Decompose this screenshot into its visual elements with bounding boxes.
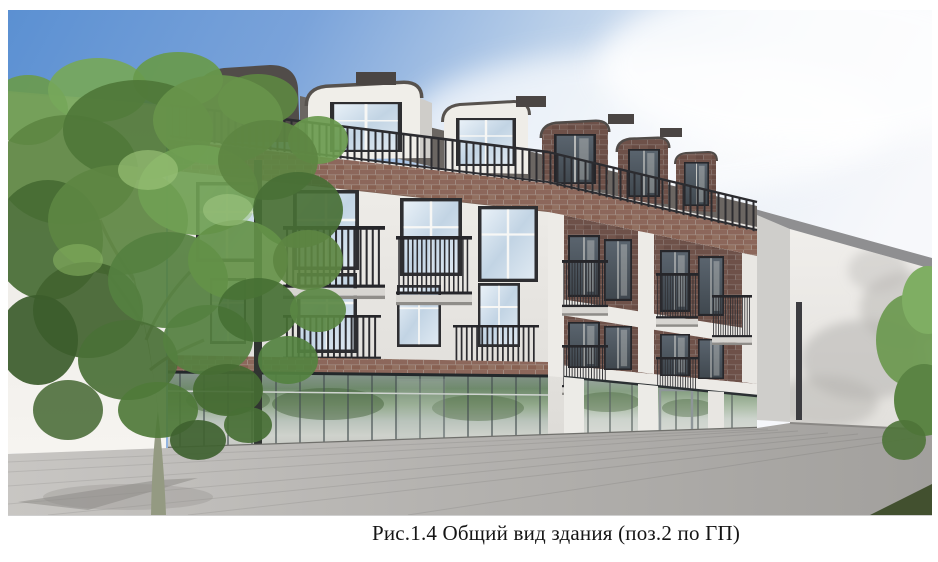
window [568, 235, 600, 297]
window [698, 256, 724, 316]
building-rendering-figure [8, 10, 932, 516]
neighbor-downpipe [796, 302, 802, 420]
rendering-scene [8, 10, 932, 515]
storefront-pillar [638, 384, 658, 433]
tree-shadow [43, 484, 213, 510]
window [604, 326, 632, 370]
window [604, 239, 632, 301]
storefront-pillar [708, 391, 724, 431]
storefront-pillar [564, 377, 584, 435]
document-page: Рис.1.4 Общий вид здания (поз.2 по ГП) [0, 0, 938, 562]
window [478, 206, 538, 282]
neighbor-shaded-edge [757, 215, 790, 422]
window [698, 339, 724, 379]
figure-caption: Рис.1.4 Общий вид здания (поз.2 по ГП) [174, 521, 938, 546]
